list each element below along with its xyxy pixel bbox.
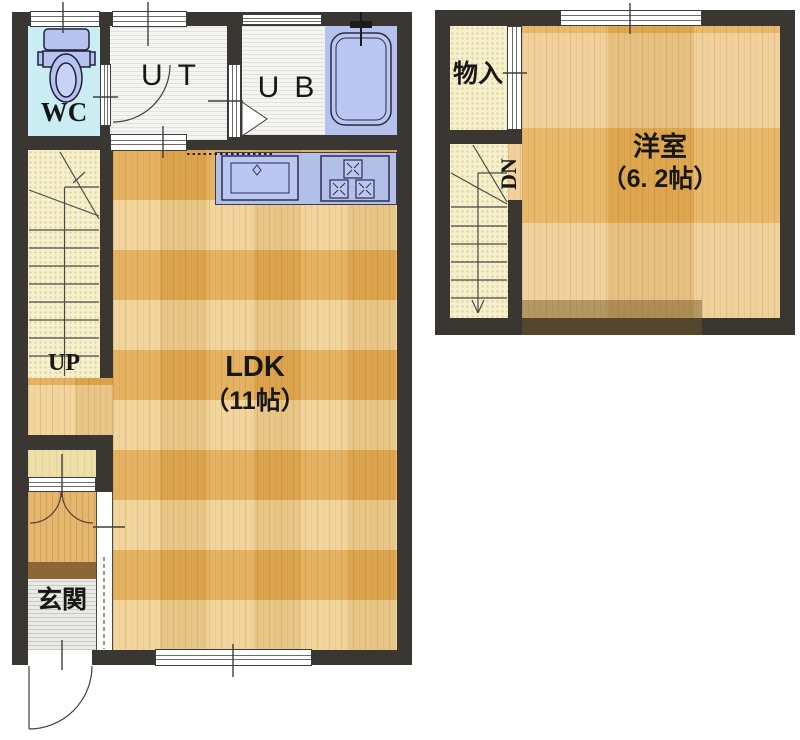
ub-label: UB — [230, 72, 342, 104]
wc-window — [30, 11, 100, 27]
genkan-step-strip — [96, 492, 113, 650]
floor-plan-canvas: WC UT UB LDK （11帖） UP 玄関 物入 洋室 （6. 2帖） D… — [0, 0, 800, 740]
ut-label: UT — [110, 60, 227, 92]
ut-sliding-door — [110, 134, 187, 151]
lower-roof-overlay — [522, 300, 702, 335]
ut-window — [112, 11, 187, 27]
ldk-label: LDK — [113, 352, 397, 382]
entrance-door-opening — [28, 650, 92, 666]
ldk-window — [155, 649, 312, 666]
up-label: UP — [28, 351, 100, 376]
storage-label: 物入 — [447, 61, 509, 87]
ub-window — [242, 14, 322, 25]
genkan-label: 玄関 — [28, 587, 96, 613]
wc-label: WC — [28, 98, 100, 126]
kitchen-counter — [215, 152, 397, 205]
entrance-door-swing-arc — [29, 666, 92, 729]
stairs-1f — [28, 150, 100, 378]
hallway-floor — [28, 378, 113, 435]
entrance-closet-top — [28, 450, 96, 477]
western-room-label: 洋室 — [555, 133, 765, 161]
dn-label: DN — [497, 152, 541, 196]
storage-sliding-door — [507, 26, 522, 130]
entrance-closet — [28, 492, 96, 562]
floor2-window — [560, 10, 702, 26]
ldk-size-label: （11帖） — [113, 388, 397, 414]
entry-step-band — [28, 562, 96, 579]
western-room-size-label: （6. 2帖） — [545, 166, 775, 192]
closet-door — [28, 477, 96, 492]
